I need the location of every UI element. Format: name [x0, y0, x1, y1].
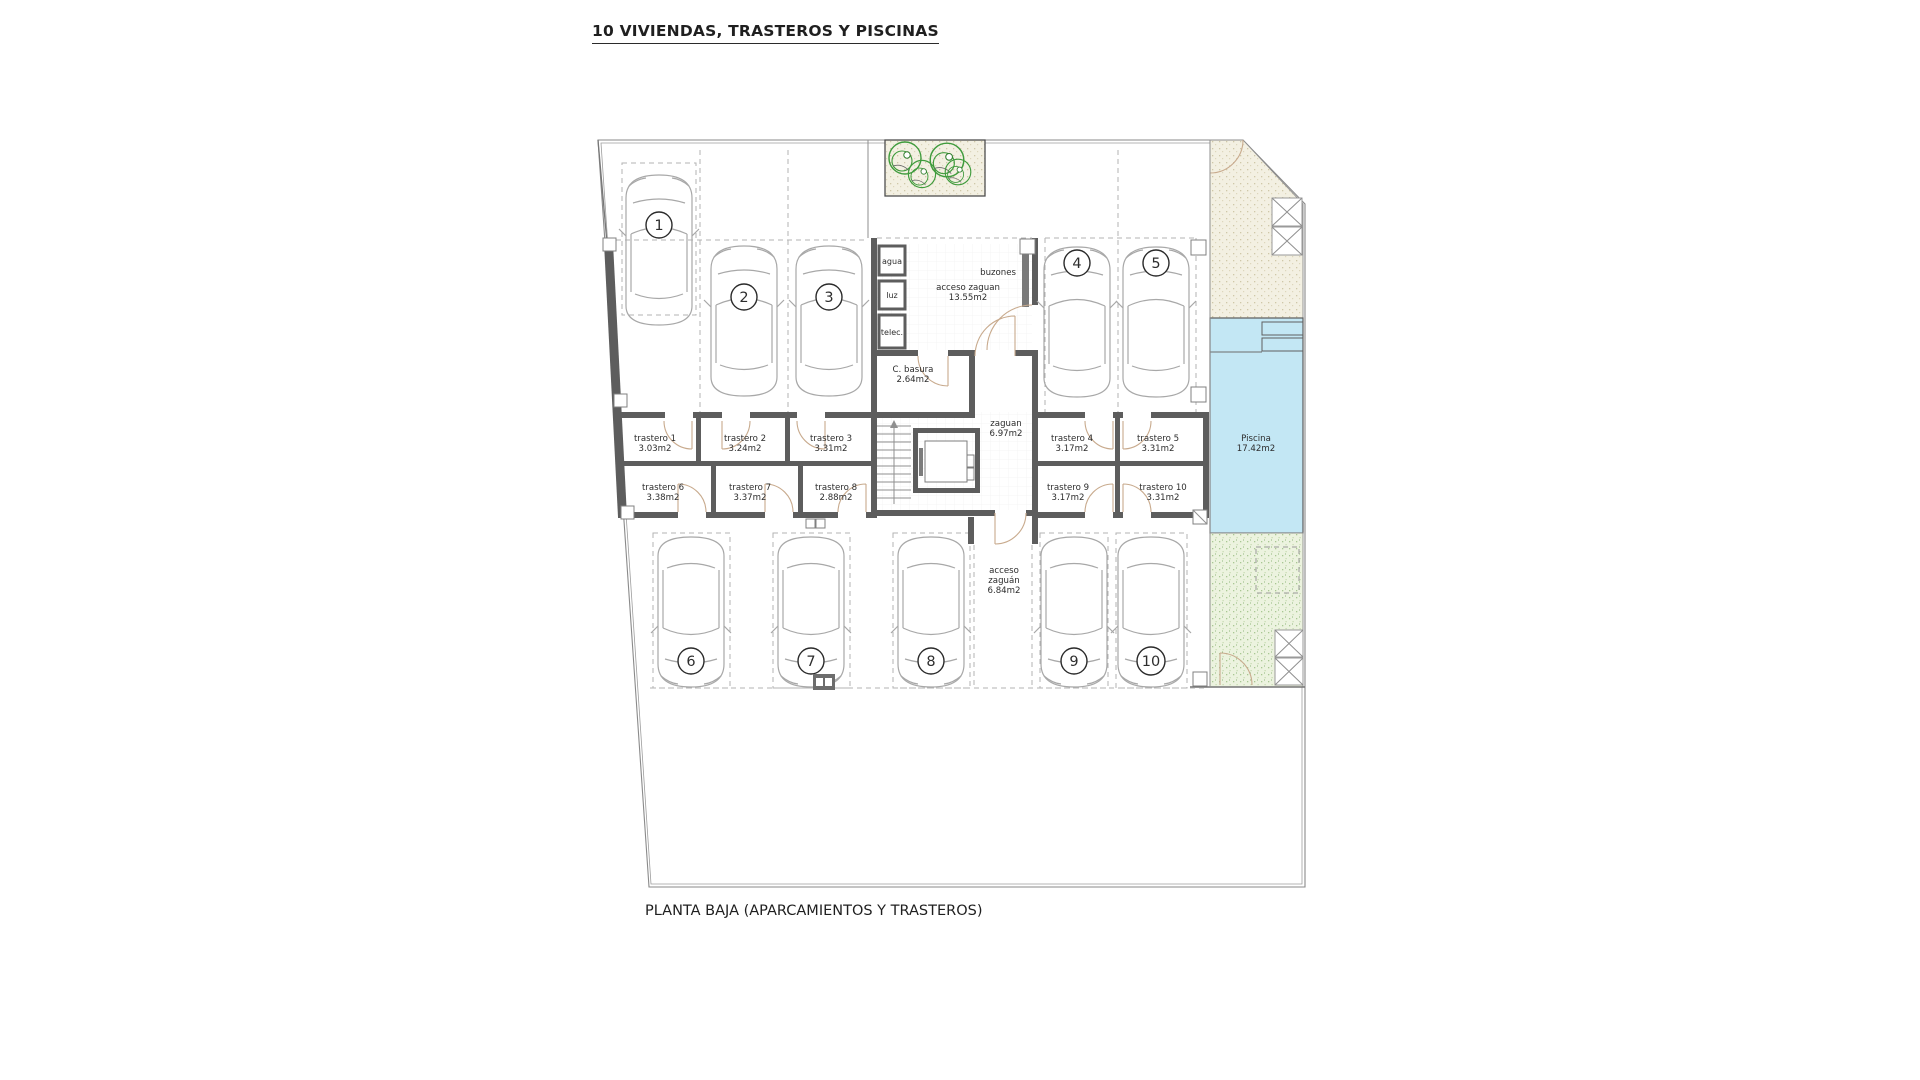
trastero-9-name: trastero 9: [1047, 483, 1089, 493]
trastero-3-name: trastero 3: [810, 434, 852, 444]
parking-10-number: 10: [1142, 654, 1160, 670]
buzones-label: buzones: [980, 268, 1016, 278]
basura-area: 2.64m2: [897, 375, 930, 385]
south-access-l1: acceso: [989, 566, 1019, 576]
floor-plan-svg: Piscina 17.42m2: [0, 0, 1920, 1080]
parking-4-number: 4: [1072, 256, 1081, 272]
trastero-5-name: trastero 5: [1137, 434, 1179, 444]
trastero-10-area: 3.31m2: [1147, 493, 1180, 503]
trastero-1-area: 3.03m2: [639, 444, 672, 454]
utility-agua-label: agua: [882, 257, 902, 266]
entrance-label: acceso zaguan: [936, 283, 1000, 293]
zaguan-label: zaguan: [990, 419, 1021, 429]
side-garden-south: [1190, 533, 1305, 687]
pool-water: [1210, 318, 1303, 533]
entrance-area: 13.55m2: [949, 293, 987, 303]
floor-plan-page: 10 VIVIENDAS, TRASTEROS Y PISCINAS PLANT…: [0, 0, 1920, 1080]
trastero-3-area: 3.31m2: [815, 444, 848, 454]
utility-closets: agua luz telec.: [879, 246, 905, 348]
side-garden-north: [1210, 140, 1303, 318]
trastero-7-name: trastero 7: [729, 483, 771, 493]
parking-6-number: 6: [686, 654, 695, 670]
trastero-7-area: 3.37m2: [734, 493, 767, 503]
pool-area: 17.42m2: [1237, 444, 1275, 454]
utility-luz-label: luz: [886, 291, 898, 300]
parking-9-number: 9: [1069, 654, 1078, 670]
trastero-6-area: 3.38m2: [647, 493, 680, 503]
pool-label: Piscina: [1241, 434, 1271, 444]
car-1: [619, 175, 699, 325]
trastero-4-name: trastero 4: [1051, 434, 1093, 444]
parking-2-number: 2: [739, 290, 748, 306]
trastero-5-area: 3.31m2: [1142, 444, 1175, 454]
utility-telec-label: telec.: [881, 328, 903, 337]
car-3: [789, 246, 869, 396]
parking-7-number: 7: [806, 654, 815, 670]
trastero-1-name: trastero 1: [634, 434, 676, 444]
trastero-2-area: 3.24m2: [729, 444, 762, 454]
trastero-6-name: trastero 6: [642, 483, 684, 493]
trastero-8-area: 2.88m2: [820, 493, 853, 503]
south-access-l2: zaguán: [988, 576, 1019, 586]
basura-label: C. basura: [893, 365, 934, 375]
south-access-l3: 6.84m2: [988, 586, 1021, 596]
parking-3-number: 3: [824, 290, 833, 306]
trastero-10-name: trastero 10: [1139, 483, 1187, 493]
parking-1-number: 1: [654, 218, 663, 234]
parking-5-number: 5: [1151, 256, 1160, 272]
parking-8-number: 8: [926, 654, 935, 670]
trastero-8-name: trastero 8: [815, 483, 857, 493]
trastero-9-area: 3.17m2: [1052, 493, 1085, 503]
planter: [885, 140, 985, 196]
trastero-2-name: trastero 2: [724, 434, 766, 444]
zaguan-area: 6.97m2: [990, 429, 1023, 439]
pool: Piscina 17.42m2: [1210, 318, 1303, 533]
car-2: [704, 246, 784, 396]
trastero-4-area: 3.17m2: [1056, 444, 1089, 454]
